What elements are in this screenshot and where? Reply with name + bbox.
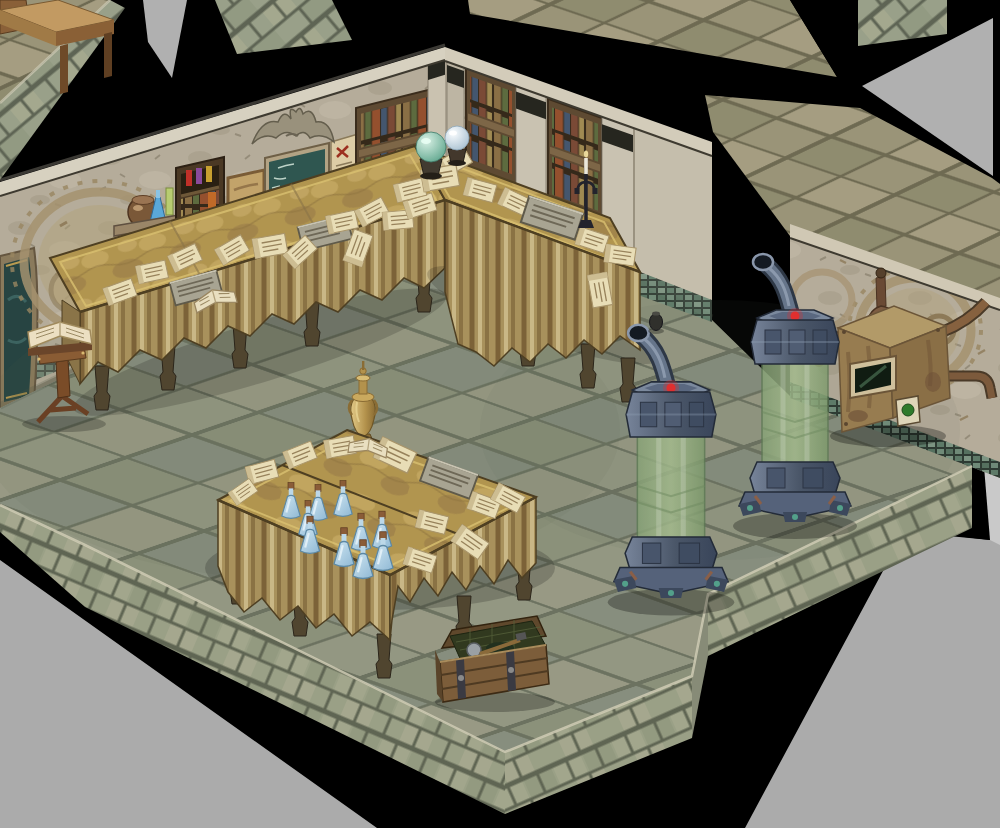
isometric-scene: Isometric alchemist library laboratory r…	[0, 0, 1000, 828]
tall-flask	[166, 188, 173, 215]
supply-chest[interactable]: Open wooden supply crate with tools	[435, 616, 555, 712]
scroll	[604, 244, 636, 266]
game-viewport: Isometric alchemist library laboratory r…	[0, 0, 1000, 828]
